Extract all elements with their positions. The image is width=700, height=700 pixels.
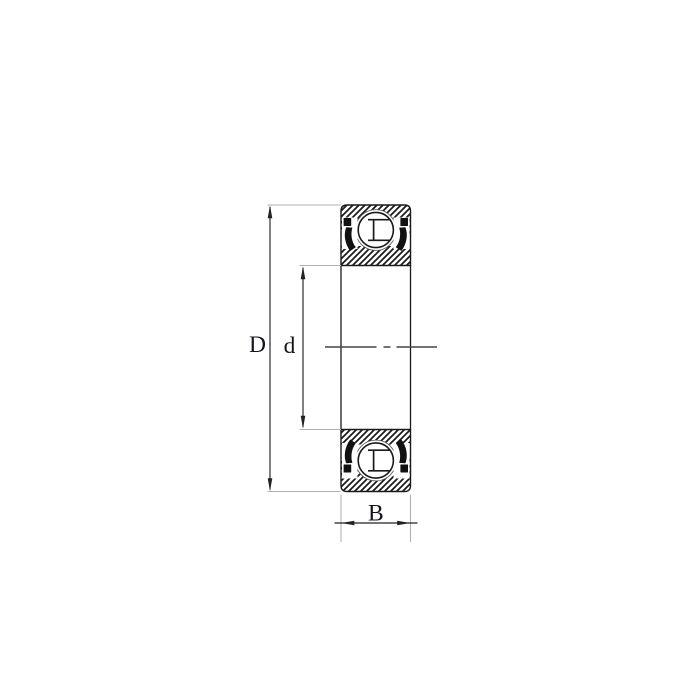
arrow-right-icon (397, 521, 410, 526)
bearing-bottom-section (341, 430, 411, 492)
seal-anchor-left (344, 465, 352, 473)
ball (358, 212, 393, 247)
outer-diameter-label: D (249, 332, 266, 358)
seal-anchor-right (400, 465, 408, 473)
arrow-down-icon (268, 478, 273, 491)
seal-anchor-right (400, 218, 408, 226)
bore-diameter-label: d (284, 333, 296, 359)
arrow-up-icon (268, 205, 273, 218)
dimension-width: B (335, 495, 418, 543)
arrow-left-icon (341, 521, 354, 526)
bearing-dimension-diagram: D d B (0, 0, 700, 700)
diagram-canvas: D d B (0, 0, 700, 700)
ball (358, 443, 393, 478)
width-label: B (368, 501, 384, 527)
seal-anchor-left (344, 218, 352, 226)
arrow-down-icon (301, 416, 306, 429)
arrow-up-icon (301, 266, 306, 279)
bearing-top-section (341, 205, 411, 266)
